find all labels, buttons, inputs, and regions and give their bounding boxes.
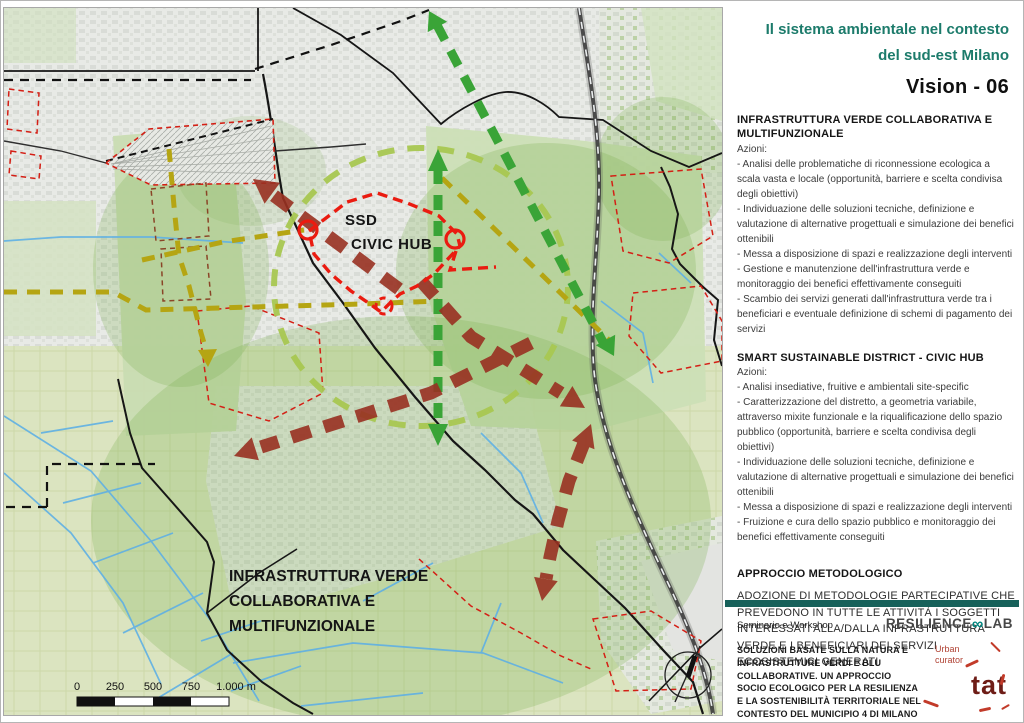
map-area: SSD CIVIC HUB INFRASTRUTTURA VERDE COLLA… bbox=[1, 1, 725, 723]
action-item: - Gestione e manutenzione dell'infrastru… bbox=[737, 262, 1015, 292]
section-heading: SMART SUSTAINABLE DISTRICT - CIVIC HUB bbox=[737, 351, 1015, 365]
event-type-label: Seminario e Workshop bbox=[737, 620, 833, 631]
section-heading: INFRASTRUTTURA VERDE COLLABORATIVA E MUL… bbox=[737, 113, 1015, 142]
infra-label-line3: MULTIFUNZIONALE bbox=[229, 618, 375, 635]
footer-divider-bar bbox=[725, 600, 1019, 607]
section-heading: APPROCCIO METODOLOGICO bbox=[737, 567, 1015, 581]
urban-curator-logo: Urban curator bbox=[935, 644, 963, 666]
section-green-infrastructure: INFRASTRUTTURA VERDE COLLABORATIVA E MUL… bbox=[737, 113, 1015, 337]
scale-tick-0: 0 bbox=[74, 681, 80, 693]
scale-tick-250: 250 bbox=[106, 681, 124, 693]
infinity-icon: ∞ bbox=[972, 616, 984, 633]
footer-columns: SOLUZIONI BASATE SULLA NATURA E INFRASTR… bbox=[737, 644, 1013, 718]
panel-sections: INFRASTRUTTURA VERDE COLLABORATIVA E MUL… bbox=[737, 113, 1015, 671]
urban-curator-line1: Urban bbox=[935, 644, 963, 655]
section-intro: Azioni: bbox=[737, 142, 1015, 157]
action-item: - Messa a disposizione di spazi e realiz… bbox=[737, 500, 1015, 515]
scale-tick-500: 500 bbox=[144, 681, 162, 693]
panel-title-line2: del sud-est Milano bbox=[766, 43, 1009, 69]
tat-brush-stroke bbox=[979, 707, 991, 712]
panel-title-line1: Il sistema ambientale nel contesto bbox=[766, 17, 1009, 43]
section-smart-district: SMART SUSTAINABLE DISTRICT - CIVIC HUB A… bbox=[737, 351, 1015, 545]
ssd-label-line1: SSD bbox=[345, 212, 377, 229]
panel-footer: Seminario e Workshop RESILIENCE∞LAB SOLU… bbox=[725, 600, 1024, 723]
footer-brand-row: Seminario e Workshop RESILIENCE∞LAB bbox=[737, 616, 1013, 634]
resilience-text: RESILIENCE bbox=[886, 616, 972, 631]
action-item: - Analisi insediative, fruitive e ambien… bbox=[737, 380, 1015, 395]
lab-text: LAB bbox=[984, 616, 1013, 631]
vision-label: Vision - 06 bbox=[766, 76, 1009, 99]
action-item: - Caratterizzazione del distretto, a geo… bbox=[737, 395, 1015, 455]
resilience-lab-logo: RESILIENCE∞LAB bbox=[886, 616, 1013, 634]
urban-curator-line2: curator bbox=[935, 655, 963, 666]
tat-brush-stroke bbox=[990, 642, 1001, 653]
tat-brush-stroke bbox=[1001, 704, 1010, 710]
infra-label-line2: COLLABORATIVA E bbox=[229, 593, 375, 610]
vision-map: SSD CIVIC HUB INFRASTRUTTURA VERDE COLLA… bbox=[1, 1, 725, 723]
tat-brush-stroke bbox=[965, 659, 979, 668]
action-item: - Fruizione e cura dello spazio pubblico… bbox=[737, 515, 1015, 545]
scale-tick-1000: 1.000 m bbox=[216, 681, 256, 693]
vision-board: SSD CIVIC HUB INFRASTRUTTURA VERDE COLLA… bbox=[0, 0, 1024, 723]
tat-brush-stroke bbox=[923, 699, 939, 707]
action-item: - Scambio dei servizi generati dall'infr… bbox=[737, 292, 1015, 337]
ssd-label-line2: CIVIC HUB bbox=[351, 236, 432, 253]
event-title: SOLUZIONI BASATE SULLA NATURA E INFRASTR… bbox=[737, 644, 923, 721]
section-intro: Azioni: bbox=[737, 365, 1015, 380]
action-item: - Analisi delle problematiche di riconne… bbox=[737, 157, 1015, 202]
infra-label-line1: INFRASTRUTTURA VERDE bbox=[229, 568, 428, 585]
action-item: - Individuazione delle soluzioni tecnich… bbox=[737, 202, 1015, 247]
title-block: Il sistema ambientale nel contesto del s… bbox=[766, 17, 1009, 99]
scale-tick-750: 750 bbox=[182, 681, 200, 693]
action-item: - Messa a disposizione di spazi e realiz… bbox=[737, 247, 1015, 262]
info-panel: Il sistema ambientale nel contesto del s… bbox=[725, 1, 1024, 723]
partner-logos: Urban curator tat bbox=[917, 644, 1013, 718]
action-item: - Individuazione delle soluzioni tecnich… bbox=[737, 455, 1015, 500]
